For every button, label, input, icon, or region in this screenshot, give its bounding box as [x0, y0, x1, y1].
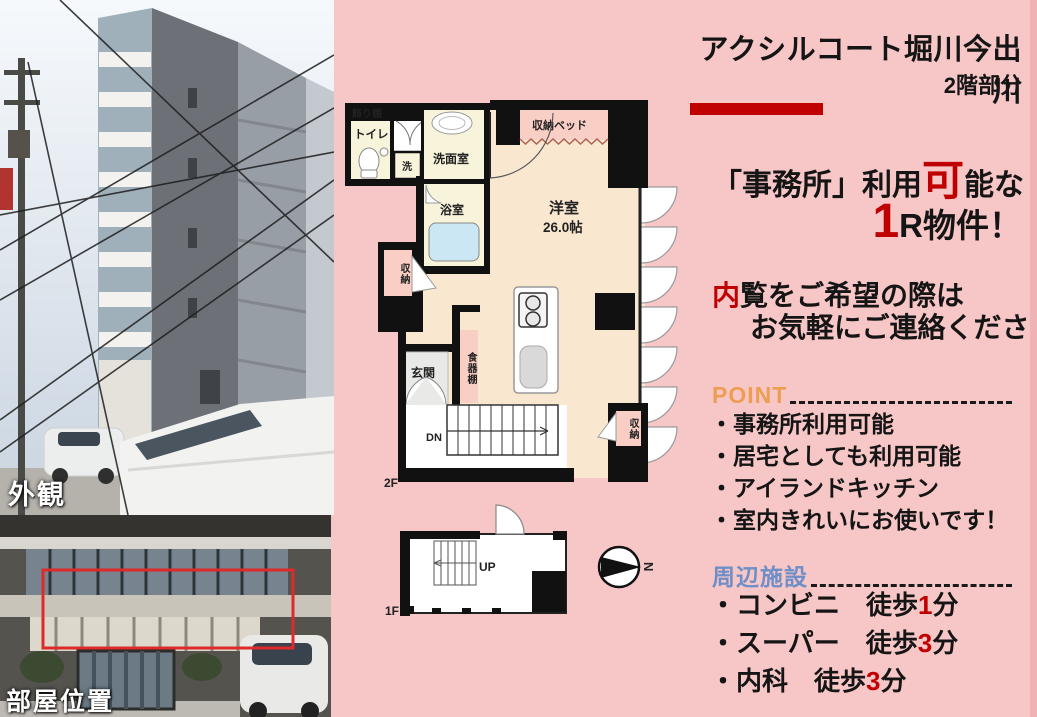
facility-item-unit: 分 — [880, 666, 906, 696]
facility-item-text: ・内科 徒歩 — [710, 666, 866, 696]
stairs-down-label: DN — [426, 432, 442, 444]
facility-item-text: ・コンビニ 徒歩 — [710, 590, 918, 620]
point-list: ・事務所利用可能 ・居宅としても利用可能 ・アイランドキッチン ・室内きれいにお… — [710, 408, 1008, 536]
closet-right-label: 収納 — [616, 413, 640, 445]
offer-line2-accent: 1 — [872, 195, 899, 248]
compass: N — [599, 547, 656, 587]
compass-north-label: N — [641, 562, 656, 571]
facility-item-unit: 分 — [932, 590, 958, 620]
page-edge-shade — [1030, 0, 1037, 717]
exterior-photo-label: 外観 — [8, 473, 66, 512]
red-underline-bar — [690, 103, 823, 115]
floorplan-drawing: 飾り棚 トイレ 洗 洗面室 浴室 収納ベ — [335, 95, 705, 645]
offer-line2-post: R物件！ — [899, 207, 1022, 244]
point-item: ・居宅としても利用可能 — [710, 440, 1008, 472]
point-heading: POINT — [712, 382, 787, 409]
closet-left-label: 収納 — [386, 253, 411, 295]
point-dashed-line — [790, 401, 1012, 404]
point-item: ・アイランドキッチン — [710, 472, 1008, 504]
facilities-list: ・コンビニ 徒歩1分 ・スーパー 徒歩3分 ・内科 徒歩3分 — [710, 586, 959, 700]
flyer-canvas: 外観 — [0, 0, 1037, 717]
facility-item: ・スーパー 徒歩3分 — [710, 624, 959, 662]
facility-item-minutes: 3 — [866, 666, 880, 696]
cupboard-label: 食器棚 — [459, 336, 478, 400]
exterior-photo-art — [0, 0, 334, 515]
invite-line2: お気軽にご連絡ください！ — [750, 306, 1037, 346]
shelf-label: 飾り棚 — [352, 107, 382, 120]
storage-bed-label: 収納ベッド — [532, 118, 587, 132]
property-subtitle: 2階部分 — [682, 68, 1022, 100]
facility-item-minutes: 3 — [918, 628, 932, 658]
facility-item: ・内科 徒歩3分 — [710, 662, 959, 700]
location-photo-label: 部屋位置 — [6, 682, 114, 717]
bathroom-label: 浴室 — [440, 202, 464, 217]
invite-line1-accent: 内 — [712, 280, 740, 311]
floor1-label: 1F — [385, 604, 399, 618]
point-heading-row: POINT — [712, 382, 1012, 409]
point-item: ・室内きれいにお使いです！ — [710, 504, 1008, 536]
toilet-label: トイレ — [354, 128, 389, 141]
point-item: ・事務所利用可能 — [710, 408, 1008, 440]
floor2-label: 2F — [384, 476, 398, 490]
main-room-size: 26.0帖 — [543, 219, 583, 235]
main-room-label: 洋室 — [549, 199, 579, 217]
facility-item-unit: 分 — [932, 628, 958, 658]
facility-item: ・コンビニ 徒歩1分 — [710, 586, 959, 624]
location-photo: 部屋位置 — [0, 515, 331, 717]
stairs-up-label: UP — [479, 560, 496, 574]
exterior-photo: 外観 — [0, 0, 334, 515]
washer-label: 洗 — [402, 160, 412, 173]
facility-item-minutes: 1 — [918, 590, 932, 620]
facility-item-text: ・スーパー 徒歩 — [710, 628, 918, 658]
powder-room-label: 洗面室 — [433, 151, 469, 166]
offer-line2: 1R物件！ — [682, 196, 1022, 252]
